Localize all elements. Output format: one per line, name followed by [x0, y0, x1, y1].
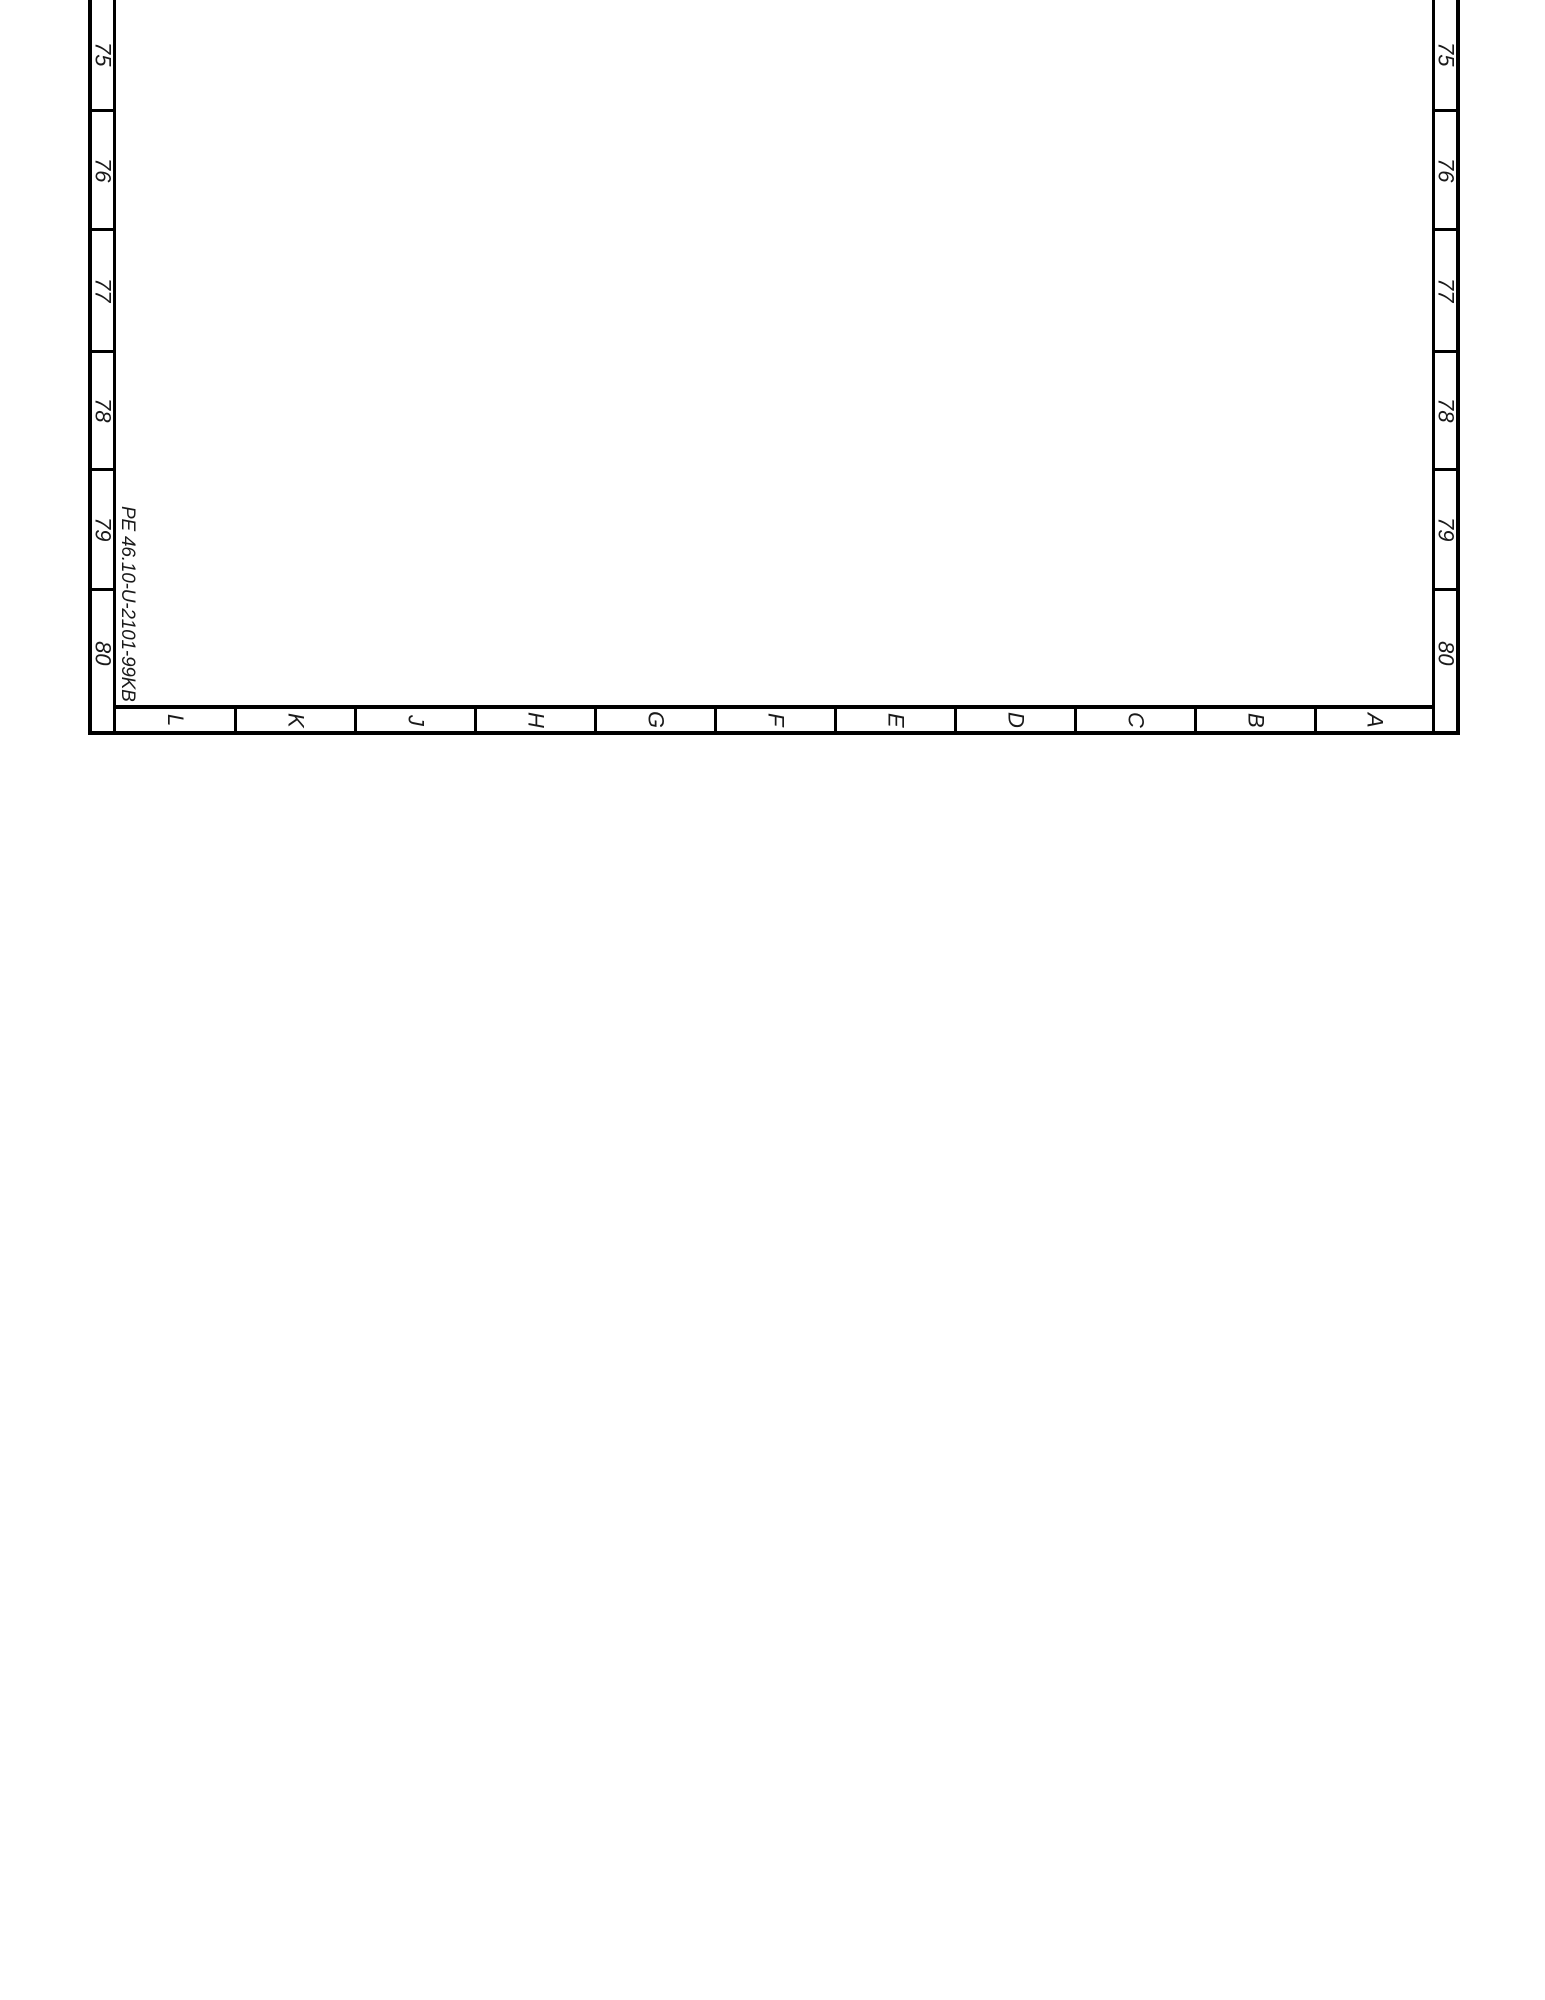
column-ref-cell: L: [116, 709, 234, 731]
row-ref-cell-right: 80: [1435, 591, 1456, 715]
column-ref-label: L: [162, 714, 188, 726]
row-ref-cell-right: 78: [1435, 353, 1456, 468]
column-ref-cell: A: [1317, 709, 1432, 731]
row-ref-cell-right: 76: [1435, 112, 1456, 228]
column-ref-cell: H: [477, 709, 594, 731]
row-ref-label: 78: [1433, 398, 1459, 422]
row-ref-cell-right: 77: [1435, 231, 1456, 350]
column-ref-label: K: [283, 713, 309, 728]
column-ref-cell: B: [1197, 709, 1314, 731]
row-ref-label: 79: [1433, 517, 1459, 541]
row-ref-label: 79: [90, 517, 116, 541]
column-ref-cell: G: [597, 709, 714, 731]
column-ref-cell: D: [957, 709, 1074, 731]
column-ref-label: E: [883, 713, 909, 728]
row-ref-label: 75: [90, 42, 116, 66]
row-ref-label: 80: [1433, 641, 1459, 665]
row-ref-label: 76: [1433, 158, 1459, 182]
column-ref-label: G: [643, 711, 669, 728]
row-ref-label: 78: [90, 398, 116, 422]
column-ref-cell: E: [837, 709, 954, 731]
column-ref-label: J: [403, 715, 429, 726]
column-ref-cell: F: [717, 709, 834, 731]
row-ref-cell-left: 78: [92, 353, 113, 468]
outer-border-bottom: [88, 731, 1460, 735]
column-ref-label: F: [763, 713, 789, 726]
drawing-number-label: PE 46.10-U-2101-99KB: [115, 506, 138, 704]
row-ref-label: 76: [90, 158, 116, 182]
row-ref-label: 80: [90, 641, 116, 665]
column-ref-label: A: [1362, 713, 1388, 728]
column-ref-label: D: [1003, 712, 1029, 728]
column-ref-label: B: [1243, 713, 1269, 728]
column-ref-cell: C: [1077, 709, 1194, 731]
column-ref-label: H: [523, 712, 549, 728]
drawing-sheet: 75 76 77 78 79 80 75 76 77 78 79 80 L K …: [0, 0, 1545, 2000]
row-ref-cell-left: 77: [92, 231, 113, 350]
row-ref-cell-right: 79: [1435, 471, 1456, 588]
row-ref-cell-left: 79: [92, 471, 113, 588]
row-ref-cell-left: 76: [92, 112, 113, 228]
row-ref-label: 77: [1433, 278, 1459, 302]
row-ref-cell-left: 80: [92, 591, 113, 715]
column-ref-cell: K: [237, 709, 354, 731]
row-ref-label: 75: [1433, 42, 1459, 66]
row-ref-label: 77: [90, 278, 116, 302]
row-ref-cell-left: 75: [92, 0, 113, 109]
row-ref-cell-right: 75: [1435, 0, 1456, 109]
column-ref-cell: J: [357, 709, 474, 731]
column-ref-label: C: [1123, 712, 1149, 728]
